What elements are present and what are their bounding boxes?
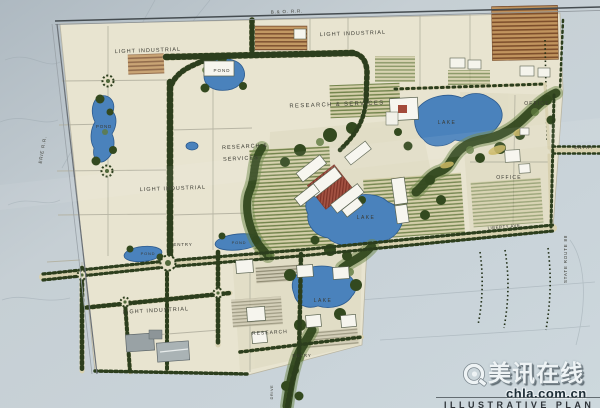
label-lake-center: LAKE [357, 215, 375, 221]
label-drive-s: DRIVE [270, 385, 274, 400]
label-entry-w: ENTRY [173, 242, 192, 247]
pond-small [186, 142, 198, 150]
label-lake-ne: LAKE [438, 120, 456, 126]
label-pond-n: POND [213, 68, 230, 73]
scanned-illustrative-plan-photo: LIGHT INDUSTRIAL LIGHT INDUSTRIAL RESEAR… [0, 0, 600, 408]
label-entry-s: ENTRY [292, 353, 311, 358]
site-plan-svg: LIGHT INDUSTRIAL LIGHT INDUSTRIAL RESEAR… [0, 0, 600, 408]
n-building [294, 29, 306, 39]
label-entry-e: ENTRY [574, 145, 593, 150]
label-state-route-88: STATE ROUTE 88 [563, 235, 568, 283]
plan-title: ILLUSTRATIVE PLAN [444, 400, 600, 408]
label-office-e: OFFICE [496, 175, 522, 181]
plan-title-rule [436, 397, 600, 398]
label-pond-entry: POND [232, 240, 247, 245]
label-pond-w: POND [96, 124, 112, 129]
label-office-ne: OFFICE [524, 101, 550, 107]
label-pond-sw: POND [141, 251, 156, 256]
label-lake-s: LAKE [314, 298, 332, 304]
